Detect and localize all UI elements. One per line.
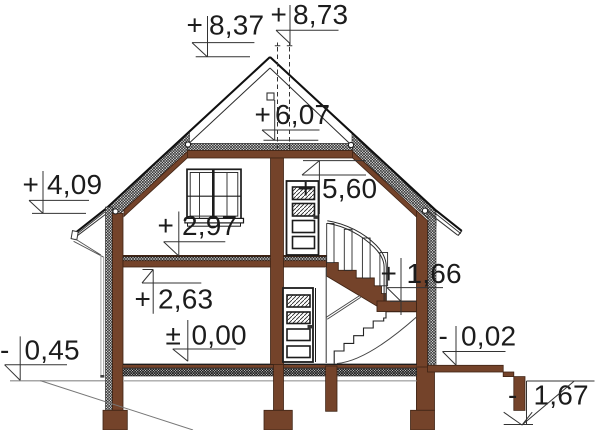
svg-text:4,09: 4,09 (47, 169, 102, 200)
svg-text:6,07: 6,07 (275, 99, 330, 130)
svg-text:-: - (439, 321, 449, 352)
svg-text:±: ± (166, 320, 182, 351)
svg-text:+: + (135, 284, 152, 315)
svg-text:+: + (158, 210, 175, 241)
svg-text:-: - (508, 380, 518, 411)
svg-text:1,66: 1,66 (407, 258, 462, 289)
svg-text:+: + (23, 169, 40, 200)
svg-text:1,67: 1,67 (534, 380, 589, 411)
svg-text:2,97: 2,97 (182, 210, 237, 241)
svg-text:-: - (0, 335, 10, 366)
svg-text:5,60: 5,60 (322, 173, 377, 204)
svg-text:8,37: 8,37 (209, 10, 264, 41)
svg-text:+: + (298, 173, 315, 204)
svg-text:0,02: 0,02 (461, 321, 516, 352)
svg-text:2,63: 2,63 (158, 284, 213, 315)
svg-text:+: + (271, 0, 288, 30)
svg-text:+: + (255, 99, 272, 130)
svg-text:+: + (187, 10, 204, 41)
svg-text:+: + (381, 258, 398, 289)
svg-text:8,73: 8,73 (293, 0, 348, 30)
svg-text:0,45: 0,45 (25, 335, 80, 366)
svg-text:0,00: 0,00 (192, 320, 247, 351)
